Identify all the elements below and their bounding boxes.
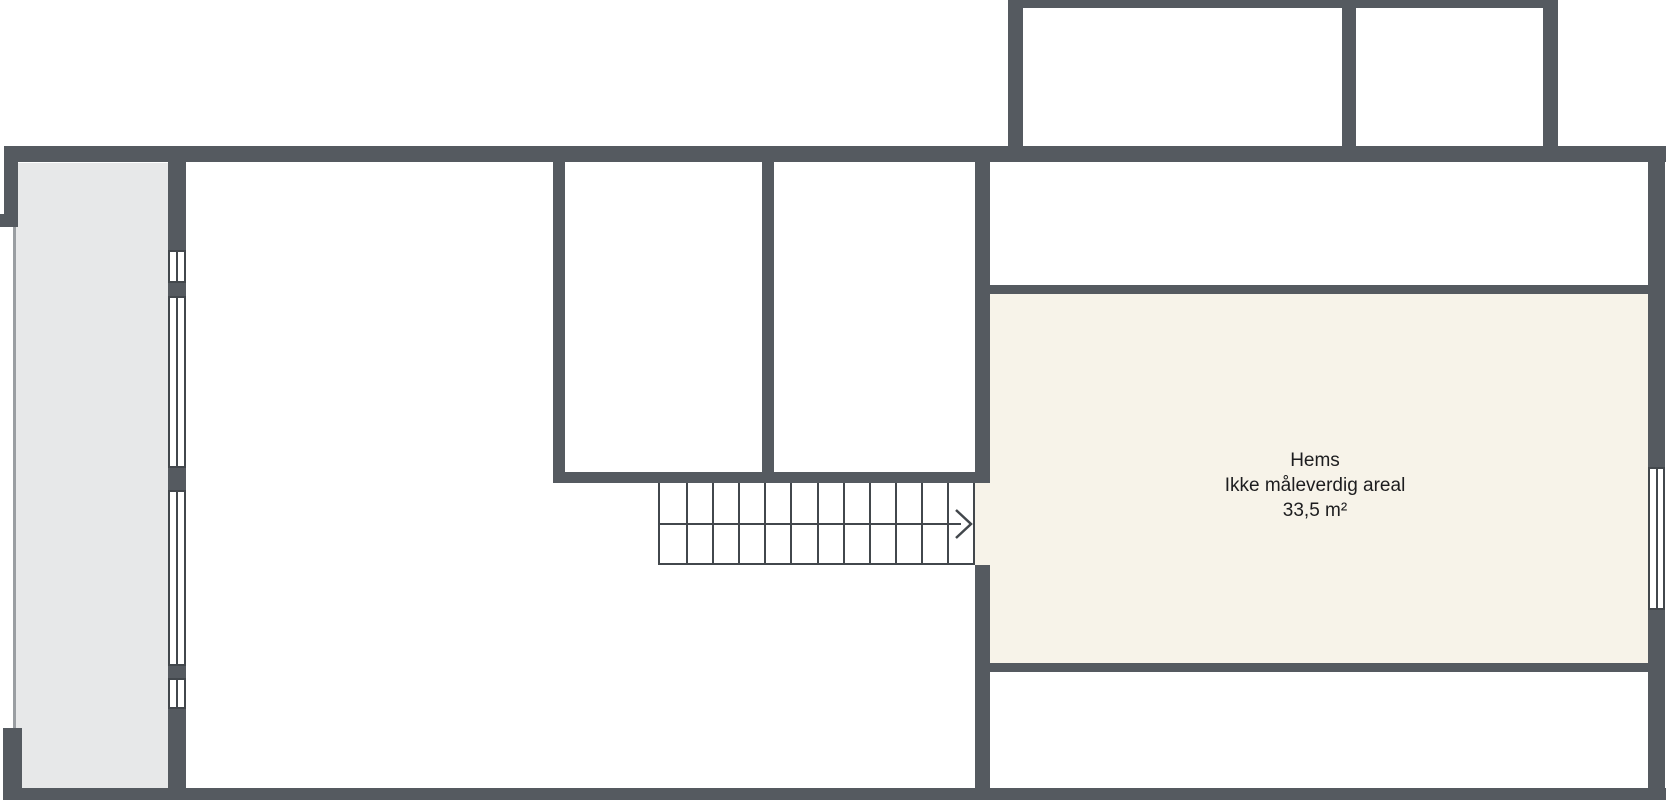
wall-left-lower — [3, 728, 22, 800]
room-area: 33,5 m² — [1050, 498, 1580, 523]
upper-rooms-top-wall — [1008, 0, 1558, 8]
stair-direction-arrow-icon — [660, 483, 973, 561]
upper-rooms-right-wall — [1543, 0, 1558, 148]
rooms-bottom-wall — [553, 472, 990, 483]
partition-wall-a — [553, 162, 565, 483]
window-mullion — [1656, 469, 1658, 608]
window-mullion — [176, 252, 178, 281]
balcony-window-1 — [168, 250, 186, 283]
hems-top-boundary — [975, 285, 1648, 294]
balcony-window-2 — [168, 296, 186, 468]
wall-top — [4, 146, 1666, 162]
staircase — [658, 483, 975, 565]
upper-rooms-divider-wall — [1342, 0, 1356, 148]
wall-bottom — [4, 788, 1666, 800]
balcony-area — [13, 163, 168, 790]
wall-right-lower — [1648, 610, 1665, 788]
balcony-window-3 — [168, 490, 186, 666]
stair-wall-upper — [975, 162, 990, 472]
balcony-wall-bottom — [168, 709, 186, 790]
wall-left-notch — [0, 214, 18, 227]
balcony-wall-top — [168, 162, 186, 250]
window-mullion — [176, 298, 178, 466]
balcony-wall-piece-2 — [168, 468, 186, 490]
stair-wall-lower — [975, 565, 990, 788]
room-label: Hems Ikke måleverdig areal 33,5 m² — [1050, 448, 1580, 523]
balcony-window-4 — [168, 678, 186, 709]
balcony-wall-piece-1 — [168, 283, 186, 296]
upper-rooms-left-wall — [1008, 0, 1023, 148]
wall-right-upper — [1648, 146, 1665, 467]
room-note: Ikke måleverdig areal — [1050, 473, 1580, 498]
right-wall-window — [1648, 467, 1665, 610]
partition-wall-b — [762, 162, 774, 483]
window-mullion — [176, 680, 178, 707]
window-mullion — [176, 492, 178, 664]
room-name: Hems — [1050, 448, 1580, 473]
balcony-railing — [13, 163, 16, 790]
balcony-wall-piece-3 — [168, 666, 186, 678]
floor-plan: Hems Ikke måleverdig areal 33,5 m² — [0, 0, 1670, 800]
hems-bottom-boundary — [975, 663, 1648, 672]
